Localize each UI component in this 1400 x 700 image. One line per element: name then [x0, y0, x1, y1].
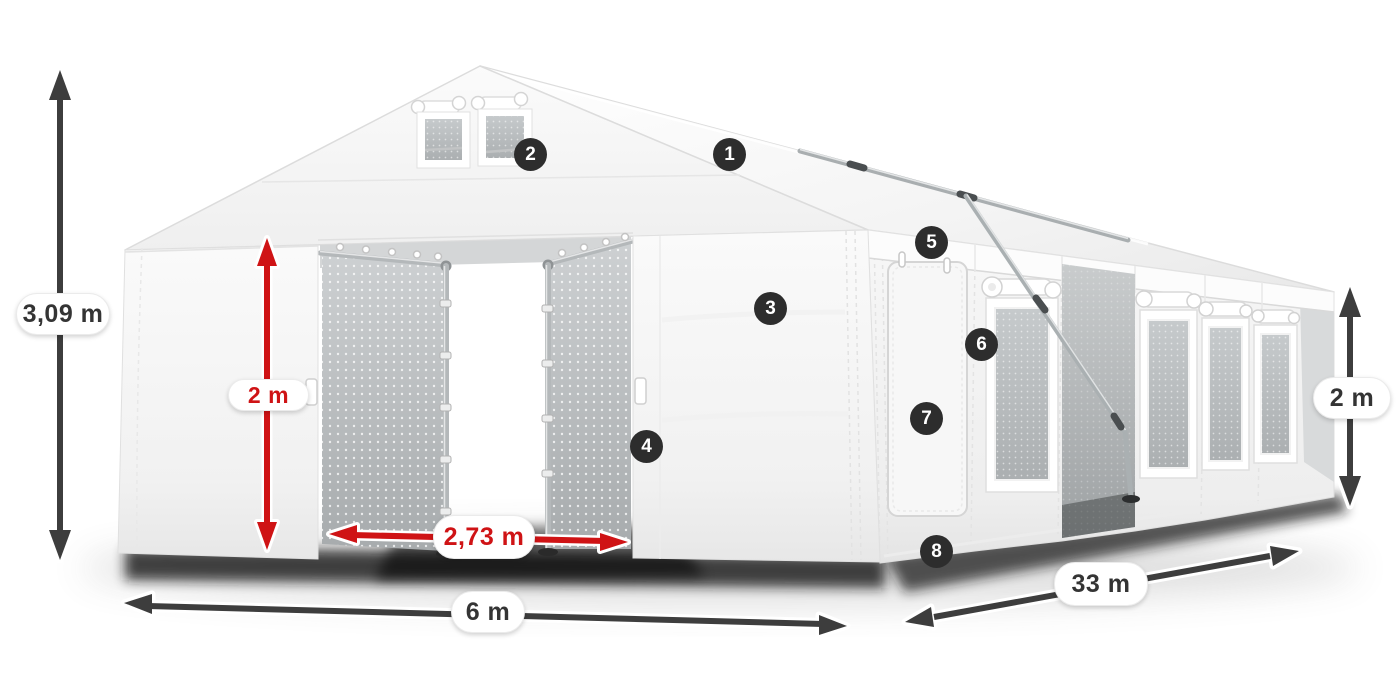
dimension-label-entrance-width: 2,73 m — [433, 515, 535, 559]
callout-1-roof: 1 — [713, 138, 746, 171]
dimension-label-wall-height: 2 m — [1313, 377, 1391, 419]
dimension-label-entrance-height: 2 m — [228, 379, 309, 411]
mesh-door-left — [320, 244, 456, 559]
callout-8-ground-skirt: 8 — [920, 535, 953, 568]
callout-5-eave-valance: 5 — [915, 226, 948, 259]
mesh-door-right — [538, 234, 633, 557]
callout-4-number: 4 — [641, 436, 652, 458]
side-window-1 — [982, 277, 1061, 492]
callout-3-number: 3 — [765, 298, 776, 320]
callout-5-number: 5 — [926, 232, 937, 254]
front-wall-right — [633, 230, 880, 562]
dimension-label-total-height: 3,09 m — [16, 293, 110, 335]
callout-3-front-wall-panel: 3 — [754, 292, 787, 325]
side-door — [888, 252, 967, 516]
side-window-2 — [1136, 291, 1201, 478]
entrance-handle-right — [635, 378, 646, 404]
dimension-label-length: 33 m — [1054, 562, 1148, 606]
entrance-width-value: 2,73 m — [444, 523, 525, 552]
entrance-opening — [320, 234, 633, 559]
callout-2-number: 2 — [525, 144, 536, 166]
side-window-3 — [1199, 302, 1252, 470]
callout-2-gable-vent-windows: 2 — [514, 138, 547, 171]
callout-1-number: 1 — [724, 144, 735, 166]
side-window-4 — [1252, 310, 1300, 463]
length-value: 33 m — [1072, 570, 1131, 599]
tent-dimension-diagram: 3,09 m 2 m 2,73 m 6 m 33 m 2 m 1 2 3 4 5… — [0, 0, 1400, 700]
callout-8-number: 8 — [931, 541, 942, 563]
width-value: 6 m — [466, 598, 511, 627]
callout-4-entrance-edge: 4 — [630, 430, 663, 463]
callout-6-number: 6 — [976, 334, 987, 356]
tent-illustration — [0, 0, 1400, 700]
callout-6-side-window: 6 — [965, 328, 998, 361]
callout-7-number: 7 — [921, 408, 932, 430]
total-height-value: 3,09 m — [23, 300, 104, 329]
entrance-height-value: 2 m — [248, 382, 289, 409]
wall-height-value: 2 m — [1330, 384, 1375, 413]
callout-7-side-door: 7 — [910, 402, 943, 435]
gable-window-left — [412, 97, 471, 169]
dimension-label-width: 6 m — [451, 591, 525, 633]
